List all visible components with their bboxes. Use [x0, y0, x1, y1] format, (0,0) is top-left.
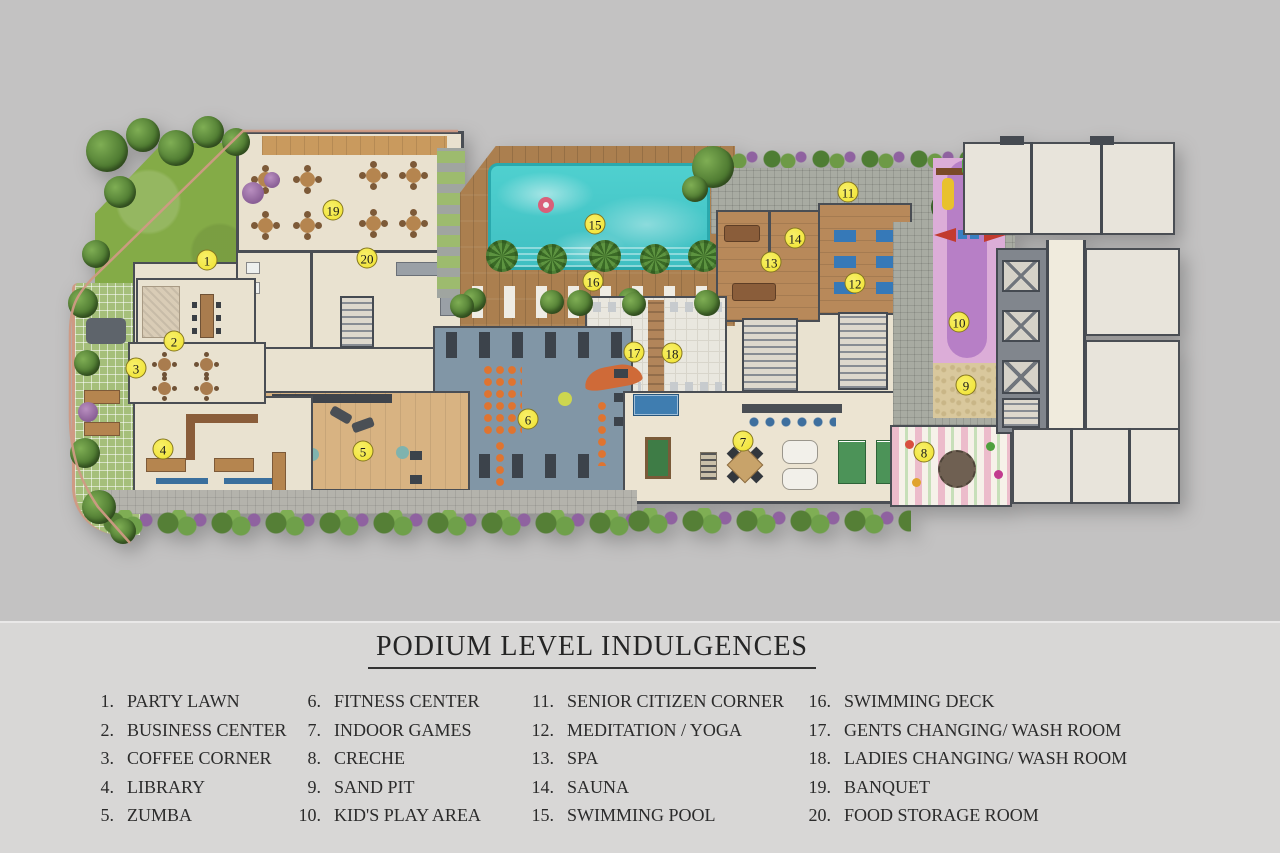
- legend-item-number: 20.: [795, 805, 831, 826]
- amenity-marker-12: 12: [845, 273, 866, 294]
- legend-item-label: FOOD STORAGE ROOM: [844, 805, 1039, 826]
- legend-item-number: 19.: [795, 777, 831, 798]
- legend-item-label: INDOOR GAMES: [334, 720, 472, 741]
- legend-item-label: SWIMMING DECK: [844, 691, 995, 712]
- legend-item-number: 11.: [518, 691, 554, 712]
- legend-item-number: 2.: [78, 720, 114, 741]
- legend-item-number: 4.: [78, 777, 114, 798]
- legend-item-number: 17.: [795, 720, 831, 741]
- legend-item: 9.SAND PIT: [285, 777, 481, 806]
- amenity-marker-16: 16: [583, 271, 604, 292]
- amenity-marker-5: 5: [353, 441, 374, 462]
- legend-item-number: 12.: [518, 720, 554, 741]
- legend-item: 20.FOOD STORAGE ROOM: [795, 805, 1127, 834]
- legend-item-number: 18.: [795, 748, 831, 769]
- amenity-marker-4: 4: [153, 439, 174, 460]
- amenity-marker-17: 17: [624, 342, 645, 363]
- legend-item-number: 9.: [285, 777, 321, 798]
- amenity-marker-20: 20: [357, 248, 378, 269]
- legend-item: 13.SPA: [518, 748, 784, 777]
- legend-item-label: PARTY LAWN: [127, 691, 240, 712]
- page-title: PODIUM LEVEL INDULGENCES: [0, 631, 1184, 669]
- legend-item-number: 1.: [78, 691, 114, 712]
- legend-item-number: 13.: [518, 748, 554, 769]
- legend-item-number: 7.: [285, 720, 321, 741]
- legend-item-label: FITNESS CENTER: [334, 691, 480, 712]
- legend-item-label: ZUMBA: [127, 805, 192, 826]
- legend-item-label: BUSINESS CENTER: [127, 720, 287, 741]
- amenity-marker-15: 15: [585, 214, 606, 235]
- legend-item-label: SENIOR CITIZEN CORNER: [567, 691, 784, 712]
- amenity-marker-8: 8: [914, 442, 935, 463]
- amenity-marker-9: 9: [956, 375, 977, 396]
- legend-item: 5.ZUMBA: [78, 805, 287, 834]
- legend-item-label: SAND PIT: [334, 777, 415, 798]
- legend-item: 8.CRECHE: [285, 748, 481, 777]
- legend-item: 4.LIBRARY: [78, 777, 287, 806]
- legend-item-label: SWIMMING POOL: [567, 805, 716, 826]
- podium-floor-plan: 1234567891011121314151617181920: [0, 0, 1280, 621]
- amenity-marker-7: 7: [733, 431, 754, 452]
- legend-item-number: 8.: [285, 748, 321, 769]
- legend-column-2: 6.FITNESS CENTER7.INDOOR GAMES8.CRECHE9.…: [285, 691, 481, 834]
- legend-item: 12.MEDITATION / YOGA: [518, 720, 784, 749]
- legend-item: 17.GENTS CHANGING/ WASH ROOM: [795, 720, 1127, 749]
- legend-item: 3.COFFEE CORNER: [78, 748, 287, 777]
- legend-column-4: 16.SWIMMING DECK17.GENTS CHANGING/ WASH …: [795, 691, 1127, 834]
- legend-item: 18.LADIES CHANGING/ WASH ROOM: [795, 748, 1127, 777]
- legend-item: 10.KID'S PLAY AREA: [285, 805, 481, 834]
- legend-item-label: KID'S PLAY AREA: [334, 805, 481, 826]
- legend-item: 6.FITNESS CENTER: [285, 691, 481, 720]
- legend-item-label: MEDITATION / YOGA: [567, 720, 742, 741]
- legend-item: 15.SWIMMING POOL: [518, 805, 784, 834]
- amenity-marker-13: 13: [761, 252, 782, 273]
- legend-item-label: LADIES CHANGING/ WASH ROOM: [844, 748, 1127, 769]
- legend-item: 14.SAUNA: [518, 777, 784, 806]
- amenity-marker-1: 1: [197, 250, 218, 271]
- podium-brochure-page: 1234567891011121314151617181920 PODIUM L…: [0, 0, 1280, 853]
- legend-item-label: SAUNA: [567, 777, 629, 798]
- legend-panel: PODIUM LEVEL INDULGENCES 1.PARTY LAWN2.B…: [0, 621, 1280, 853]
- legend-item: 16.SWIMMING DECK: [795, 691, 1127, 720]
- amenity-marker-2: 2: [164, 331, 185, 352]
- legend-item-label: BANQUET: [844, 777, 930, 798]
- legend-item: 2.BUSINESS CENTER: [78, 720, 287, 749]
- legend-item-label: CRECHE: [334, 748, 405, 769]
- legend-column-3: 11.SENIOR CITIZEN CORNER12.MEDITATION / …: [518, 691, 784, 834]
- legend-item-number: 5.: [78, 805, 114, 826]
- legend-item-label: COFFEE CORNER: [127, 748, 272, 769]
- amenity-marker-14: 14: [785, 228, 806, 249]
- amenity-marker-3: 3: [126, 358, 147, 379]
- amenity-marker-10: 10: [949, 312, 970, 333]
- amenity-marker-11: 11: [838, 182, 859, 203]
- legend-item: 7.INDOOR GAMES: [285, 720, 481, 749]
- legend-item: 19.BANQUET: [795, 777, 1127, 806]
- legend-item-number: 15.: [518, 805, 554, 826]
- legend-item-label: LIBRARY: [127, 777, 205, 798]
- legend-item-label: GENTS CHANGING/ WASH ROOM: [844, 720, 1121, 741]
- legend-item: 11.SENIOR CITIZEN CORNER: [518, 691, 784, 720]
- amenity-markers-layer: 1234567891011121314151617181920: [0, 0, 1280, 621]
- legend-item-number: 16.: [795, 691, 831, 712]
- legend-item-number: 10.: [285, 805, 321, 826]
- legend-item-number: 6.: [285, 691, 321, 712]
- legend-item-label: SPA: [567, 748, 598, 769]
- legend-item: 1.PARTY LAWN: [78, 691, 287, 720]
- legend-item-number: 3.: [78, 748, 114, 769]
- legend-item-number: 14.: [518, 777, 554, 798]
- amenity-marker-18: 18: [662, 343, 683, 364]
- amenity-marker-6: 6: [518, 409, 539, 430]
- amenity-marker-19: 19: [323, 200, 344, 221]
- legend-column-1: 1.PARTY LAWN2.BUSINESS CENTER3.COFFEE CO…: [78, 691, 287, 834]
